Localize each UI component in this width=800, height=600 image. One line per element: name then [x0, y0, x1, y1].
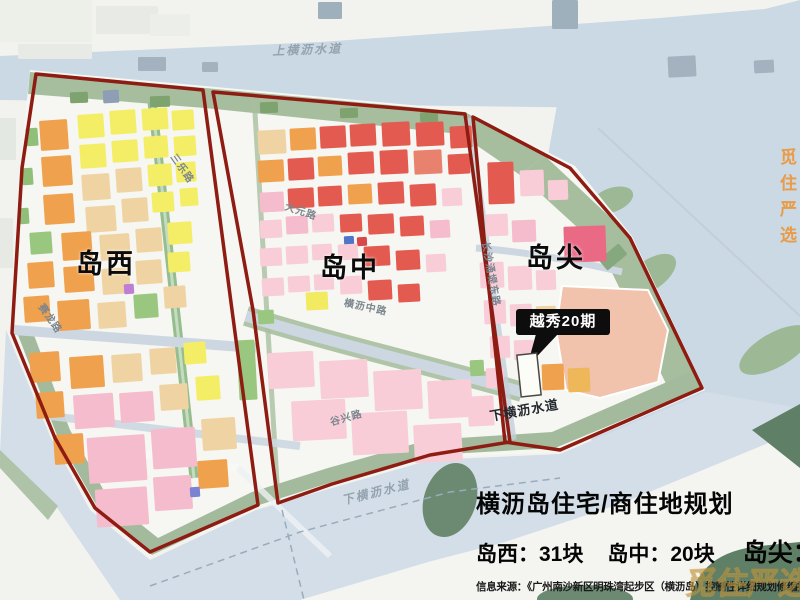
parcel	[286, 215, 309, 234]
parcel	[317, 155, 342, 176]
parcel	[85, 205, 117, 233]
parcel	[190, 487, 201, 498]
parcel	[111, 353, 143, 383]
parcel	[480, 262, 505, 289]
parcel	[318, 2, 342, 19]
parcel	[81, 173, 111, 201]
parcel	[288, 275, 311, 292]
parcel	[426, 253, 447, 272]
parcel	[39, 119, 69, 151]
parcel	[35, 391, 65, 419]
parcel	[70, 92, 88, 104]
parcel	[167, 251, 190, 272]
parcel	[552, 0, 578, 29]
parcel	[167, 221, 192, 245]
parcel	[119, 391, 155, 423]
parcel	[413, 149, 442, 174]
parcel	[319, 359, 369, 399]
parcel	[262, 277, 285, 296]
parcel	[138, 57, 166, 71]
parcel	[163, 285, 186, 308]
parcel	[260, 102, 278, 114]
parcel	[18, 44, 92, 59]
parcel	[147, 163, 172, 187]
parcel	[61, 231, 93, 261]
parcel	[520, 170, 545, 197]
parcel	[312, 243, 333, 260]
parcel	[508, 266, 533, 291]
parcel	[141, 107, 168, 131]
stat-west: 岛西：31块	[476, 538, 583, 568]
parcel	[291, 399, 347, 442]
parcel	[467, 395, 495, 426]
parcel	[135, 259, 163, 285]
parcel	[340, 108, 358, 119]
parcel	[563, 225, 606, 262]
parcel	[289, 127, 316, 150]
parcel	[29, 231, 52, 254]
parcel	[267, 351, 315, 389]
parcel	[487, 162, 514, 205]
parcel	[0, 218, 13, 268]
parcel	[179, 187, 198, 206]
parcel	[73, 393, 115, 430]
parcel	[171, 109, 194, 130]
parcel	[427, 379, 473, 419]
parcel	[27, 261, 55, 289]
parcel	[258, 310, 275, 325]
parcel	[351, 411, 409, 456]
parcel	[381, 121, 410, 146]
parcel	[447, 153, 470, 174]
parcel	[159, 383, 189, 411]
parcel	[373, 369, 423, 411]
parcel	[95, 486, 150, 528]
parcel	[103, 90, 120, 104]
parcel	[96, 6, 158, 34]
planning-map: 岛西岛中岛尖上横沥水道下横沥水道下横沥水道三乐路大元路横沥中路赛龙路谷兴路长沙涌…	[0, 0, 800, 600]
parcel	[97, 301, 127, 329]
parcel	[124, 284, 135, 295]
map-title: 横沥岛住宅/商住地规划	[476, 484, 800, 519]
parcel	[754, 59, 775, 73]
parcel	[195, 375, 221, 401]
parcel	[201, 417, 237, 451]
parcel	[260, 247, 283, 266]
parcel	[398, 283, 421, 302]
parcel	[363, 245, 390, 266]
parcel	[430, 219, 451, 238]
parcel	[379, 149, 408, 174]
parcel	[512, 220, 537, 243]
parcel	[202, 62, 218, 72]
parcel	[347, 183, 372, 204]
parcel	[314, 273, 335, 290]
parcel	[317, 185, 342, 206]
parcel	[312, 213, 335, 232]
parcel	[150, 96, 170, 108]
parcel	[415, 121, 444, 146]
parcel	[409, 183, 436, 206]
parcel	[486, 214, 509, 237]
parcel	[548, 180, 569, 201]
parcel	[357, 237, 367, 247]
parcel	[306, 291, 329, 310]
parcel	[568, 368, 591, 393]
parcel	[149, 347, 177, 375]
parcel	[542, 364, 565, 391]
parcel	[287, 157, 314, 180]
parcel	[63, 265, 95, 293]
parcel	[287, 187, 314, 208]
parcel	[257, 159, 284, 182]
yuexiu-parcel	[517, 353, 541, 397]
parcel	[143, 135, 168, 159]
parcel	[41, 155, 73, 187]
parcel	[133, 293, 159, 319]
watermark-corner: 觅住严选	[684, 558, 800, 600]
parcel	[286, 245, 309, 264]
parcel	[0, 118, 16, 160]
parcel	[29, 351, 61, 383]
parcel	[197, 459, 229, 489]
parcel	[260, 219, 283, 238]
parcel	[349, 123, 376, 146]
parcel	[667, 55, 696, 77]
parcel	[420, 112, 438, 123]
parcel	[399, 215, 424, 236]
parcel	[442, 187, 463, 206]
parcel	[121, 197, 149, 223]
parcel	[0, 0, 92, 42]
parcel	[111, 139, 138, 163]
parcel	[395, 249, 420, 270]
parcel	[367, 279, 392, 300]
parcel	[99, 233, 131, 261]
parcel	[340, 213, 363, 232]
parcel	[79, 143, 107, 169]
parcel	[151, 427, 198, 470]
parcel	[86, 434, 147, 484]
parcel	[319, 125, 346, 148]
parcel	[338, 243, 359, 260]
parcel	[367, 213, 394, 234]
parcel	[69, 355, 105, 389]
parcel	[173, 135, 196, 156]
parcel	[151, 191, 174, 212]
parcel	[115, 167, 143, 193]
parcel	[340, 275, 363, 294]
parcel	[153, 475, 193, 512]
parcel	[109, 109, 137, 135]
parcel	[23, 295, 51, 323]
parcel	[377, 181, 404, 204]
parcel	[183, 341, 206, 364]
parcel	[347, 151, 374, 174]
parcel	[470, 360, 485, 377]
parcel	[259, 191, 284, 212]
parcel	[57, 299, 91, 331]
parcel	[77, 113, 105, 139]
yuexiu-callout: 越秀20期	[516, 309, 610, 335]
parcel	[175, 161, 196, 182]
parcel	[536, 270, 557, 291]
parcel	[135, 227, 163, 253]
parcel	[43, 193, 75, 225]
parcel	[150, 14, 190, 36]
watermark-right: 觅住严选	[774, 148, 799, 252]
parcel	[257, 129, 286, 154]
